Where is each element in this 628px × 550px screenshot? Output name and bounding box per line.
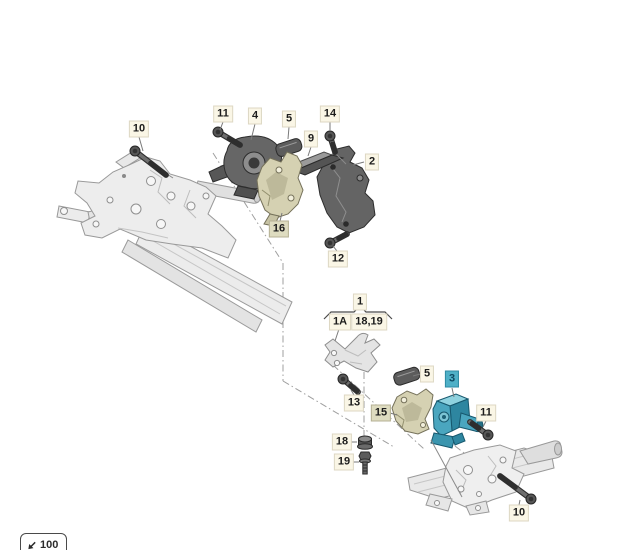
leader-line-5-top: [288, 127, 289, 139]
callout-1[interactable]: 1: [353, 294, 367, 311]
callout-4[interactable]: 4: [248, 108, 262, 125]
leader-line-11-bottom: [483, 421, 486, 427]
callout-1A[interactable]: 1A: [329, 314, 351, 331]
scale-arrow-icon: [27, 540, 37, 550]
part-3-engine-mount-selected[interactable]: [431, 394, 483, 448]
callout-19[interactable]: 19: [334, 454, 354, 471]
callout-11-bottom[interactable]: 11: [476, 405, 496, 422]
part-15-bracket-highlighted[interactable]: [392, 389, 433, 434]
part-5-buffer-stop-bottom[interactable]: [392, 366, 421, 386]
callout-5-bottom[interactable]: 5: [420, 366, 434, 383]
callout-18[interactable]: 18: [332, 434, 352, 451]
callout-13[interactable]: 13: [344, 395, 364, 412]
leader-line-1A: [335, 329, 339, 341]
callout-15[interactable]: 15: [371, 405, 391, 422]
callout-14[interactable]: 14: [320, 106, 340, 123]
part-14-bolt[interactable]: [325, 131, 335, 152]
part-11-bolt-top[interactable]: [213, 127, 240, 145]
callout-18-19[interactable]: 18,19: [351, 314, 387, 331]
part-19-bolt[interactable]: [359, 452, 371, 474]
part-1a-pendulum-support[interactable]: [325, 333, 380, 372]
part-18-nut[interactable]: [358, 436, 373, 449]
callout-2[interactable]: 2: [365, 154, 379, 171]
callout-3[interactable]: 3: [445, 371, 459, 388]
callout-5-top[interactable]: 5: [282, 111, 296, 128]
scale-button[interactable]: 100: [20, 533, 67, 550]
leader-line-2: [353, 162, 364, 165]
part-12-bolt[interactable]: [325, 234, 347, 248]
callout-10-top[interactable]: 10: [129, 121, 149, 138]
exploded-diagram-drawing: [0, 0, 628, 550]
parts-diagram-canvas[interactable]: 1011451492161211A18,1913515311181910 100: [0, 0, 628, 550]
scale-button-label: 100: [40, 539, 58, 550]
callout-12[interactable]: 12: [328, 251, 348, 268]
rear-subframe-assembly: [408, 441, 562, 515]
callout-11-top[interactable]: 11: [213, 106, 233, 123]
callout-9[interactable]: 9: [304, 131, 318, 148]
callout-10-bottom[interactable]: 10: [509, 505, 529, 522]
part-13-bolt[interactable]: [338, 374, 358, 392]
leader-line-9: [308, 147, 311, 156]
callout-16[interactable]: 16: [269, 221, 289, 238]
